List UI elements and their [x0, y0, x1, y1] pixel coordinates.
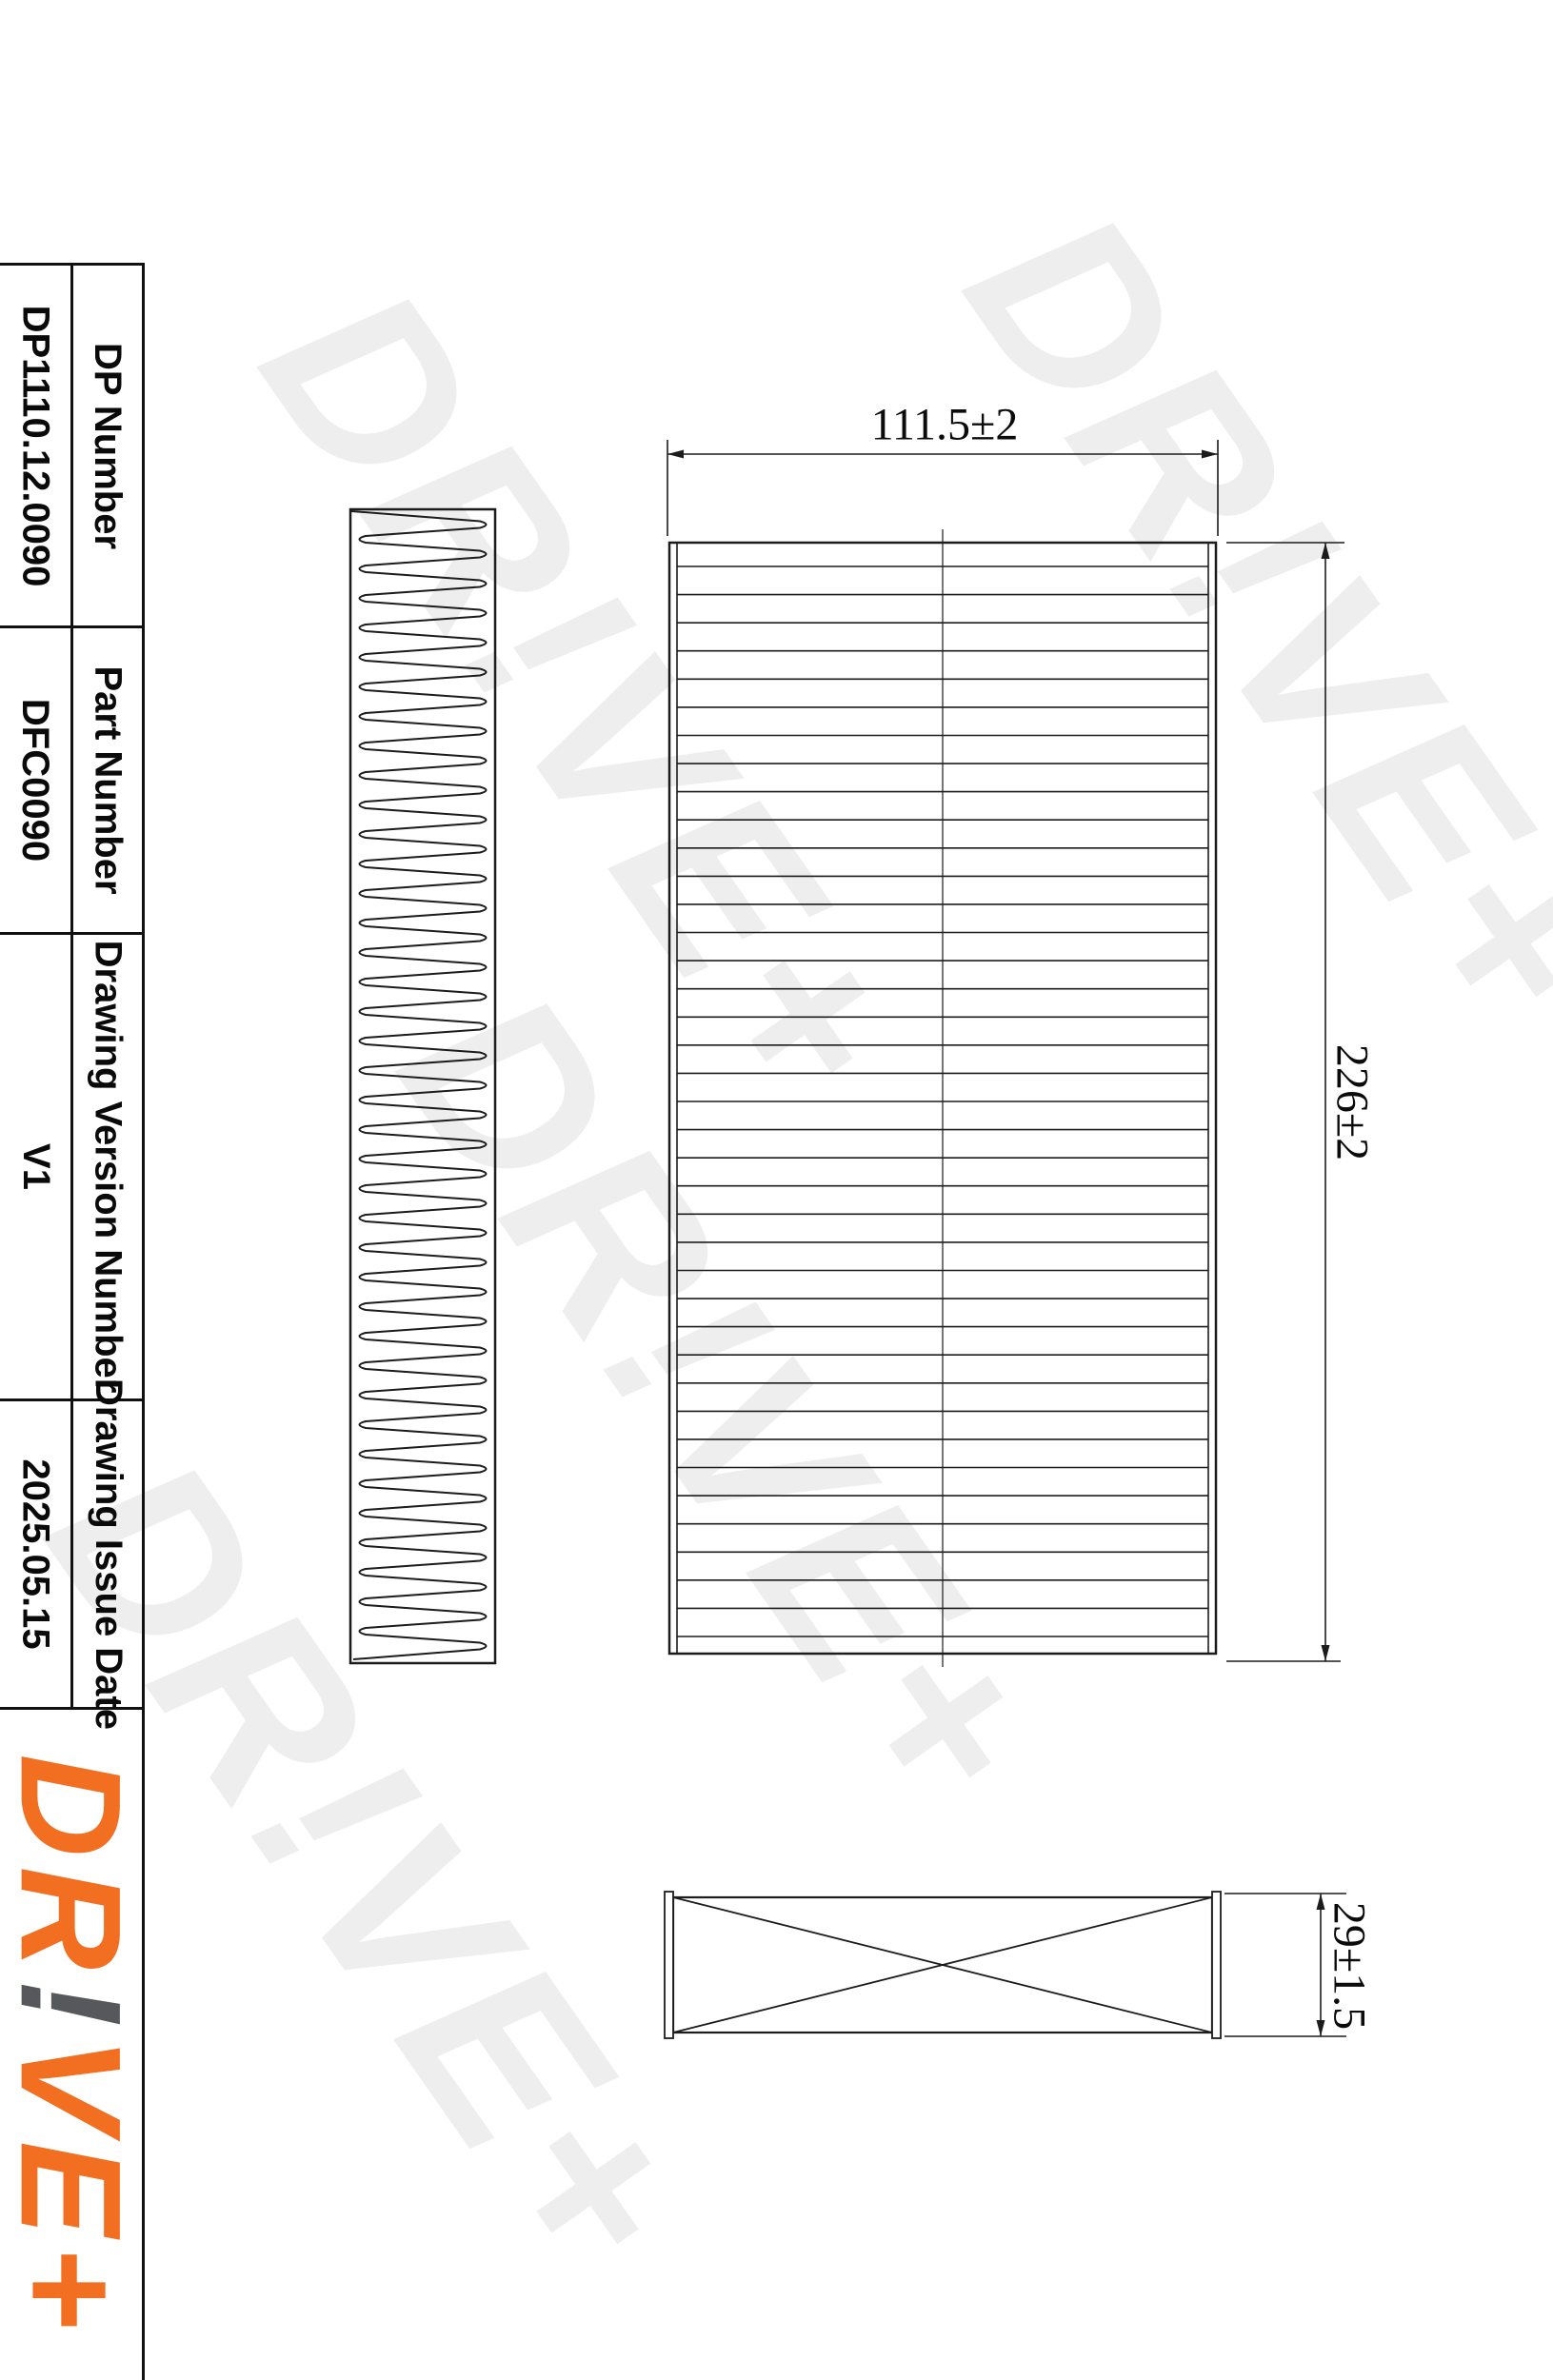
height-dimension-label: 226±2 [1326, 1044, 1379, 1160]
issue-date-value: 2025.05.15 [14, 1458, 57, 1649]
title-block-row: V1 Drawing Version Number [0, 935, 142, 1401]
logo-text-dr: DR [0, 1754, 151, 1979]
side-view-pleats [350, 509, 495, 1663]
right-end-cap [1212, 1892, 1221, 2038]
part-number-label: Part Number [87, 665, 129, 894]
logo-cell: DR!VE+ [0, 1710, 142, 2380]
title-block-row: DP1110.12.0090 DP Number [0, 266, 142, 628]
top-view-panel [669, 529, 1216, 1667]
part-number-value-cell: DFC0090 [0, 628, 70, 932]
dp-number-value-cell: DP1110.12.0090 [0, 266, 70, 625]
left-end-cap [665, 1892, 673, 2038]
issue-date-label: Drawing Issue Date [87, 1378, 129, 1730]
issue-date-value-cell: 2025.05.15 [0, 1401, 70, 1707]
logo-exclamation: ! [0, 1979, 151, 2036]
drive-plus-logo: DR!VE+ [0, 1754, 153, 2338]
drawing-version-value: V1 [14, 1143, 57, 1190]
dp-number-value: DP1110.12.0090 [14, 305, 57, 586]
dp-number-label-cell: DP Number [70, 266, 142, 625]
width-dimension-label: 111.5±2 [871, 399, 1019, 451]
drawing-version-label: Drawing Version Number [87, 941, 129, 1394]
logo-text-ve-plus: VE+ [0, 2036, 151, 2339]
dp-number-label: DP Number [87, 342, 129, 548]
width-dimension [667, 440, 1218, 536]
title-block: DP1110.12.0090 DP Number DFC0090 Part Nu… [0, 263, 145, 2380]
drawing-views [0, 0, 1553, 2380]
bottom-view-profile [665, 1892, 1221, 2038]
drawing-sheet: DR!VE+ DR!VE+ DR!VE+ DR!VE+ [0, 0, 1553, 2380]
title-block-row: DFC0090 Part Number [0, 628, 142, 935]
drawing-version-label-cell: Drawing Version Number [70, 935, 142, 1398]
thickness-dimension-label: 29±1.5 [1324, 1902, 1376, 2030]
part-number-value: DFC0090 [14, 699, 57, 862]
title-block-row: 2025.05.15 Drawing Issue Date [0, 1401, 142, 1710]
issue-date-label-cell: Drawing Issue Date [70, 1401, 142, 1707]
drawing-version-value-cell: V1 [0, 935, 70, 1398]
part-number-label-cell: Part Number [70, 628, 142, 932]
